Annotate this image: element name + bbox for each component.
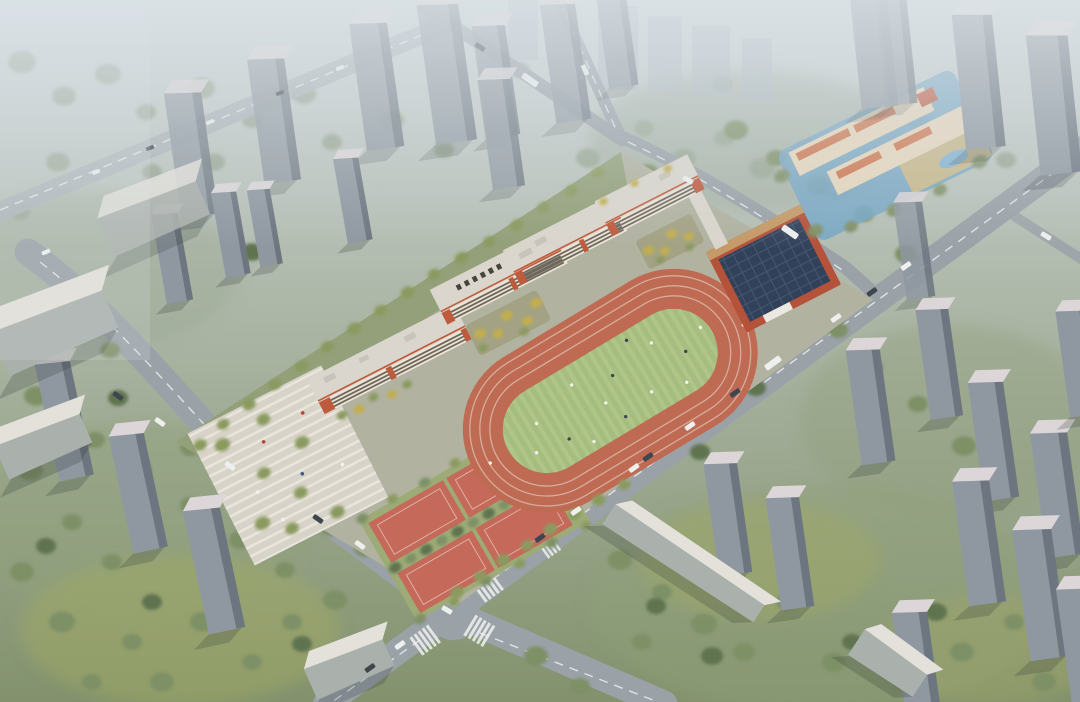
tree: [691, 614, 717, 635]
tree: [323, 590, 347, 609]
haze-left: [0, 0, 150, 360]
tree: [646, 598, 666, 614]
haze-overlay: [0, 0, 1080, 250]
tree: [242, 654, 262, 670]
tree: [1032, 672, 1056, 691]
tree: [36, 538, 56, 554]
tree: [524, 646, 548, 665]
aerial-rendering: [0, 0, 1080, 702]
tree: [733, 643, 755, 661]
tree: [652, 584, 672, 600]
tree: [701, 647, 723, 665]
tree: [82, 674, 102, 690]
tree: [282, 614, 302, 630]
tree: [10, 562, 34, 581]
tree: [150, 672, 174, 691]
tree: [122, 634, 142, 650]
tree: [632, 634, 652, 650]
tree: [102, 554, 122, 570]
tree: [952, 436, 976, 455]
tree: [62, 514, 82, 530]
rendering-canvas: [0, 0, 1080, 702]
tree: [950, 642, 974, 661]
tree: [570, 678, 590, 694]
tree: [908, 396, 928, 412]
tree: [1004, 614, 1024, 630]
tree: [275, 562, 295, 578]
tree: [690, 444, 710, 460]
tree: [49, 612, 75, 633]
tree: [292, 636, 312, 652]
tree: [142, 594, 162, 610]
